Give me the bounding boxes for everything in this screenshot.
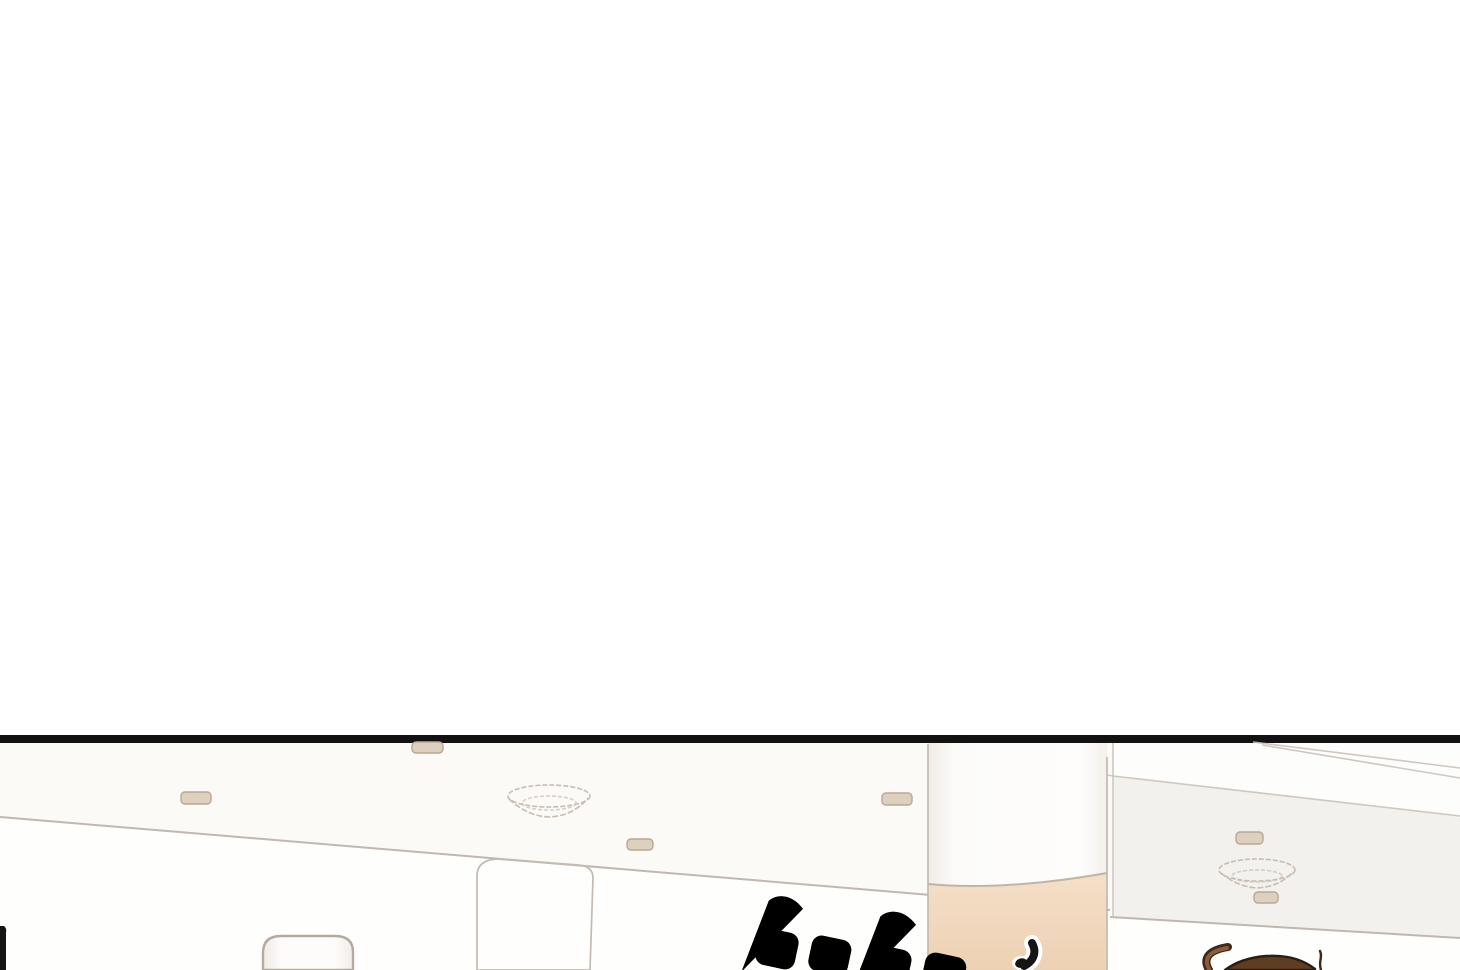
column-center-beige bbox=[928, 873, 1107, 970]
recessed-light-icon bbox=[181, 792, 211, 804]
column-center bbox=[928, 743, 1107, 970]
recessed-light-icon bbox=[412, 742, 443, 753]
recessed-light-icon bbox=[882, 793, 912, 805]
column-center-white bbox=[928, 743, 1107, 886]
webtoon-page bbox=[0, 0, 1460, 970]
recessed-light-icon bbox=[627, 839, 653, 850]
blank-margin bbox=[0, 0, 1460, 735]
lamp-cylinder-top bbox=[263, 936, 353, 970]
comic-panel bbox=[0, 0, 1460, 970]
recessed-light-icon bbox=[1236, 832, 1263, 844]
recessed-light-icon bbox=[1254, 892, 1278, 903]
panel-border-line bbox=[0, 735, 1460, 743]
left-edge-sfx-fragment bbox=[0, 926, 6, 970]
hair-strand bbox=[1320, 951, 1321, 970]
